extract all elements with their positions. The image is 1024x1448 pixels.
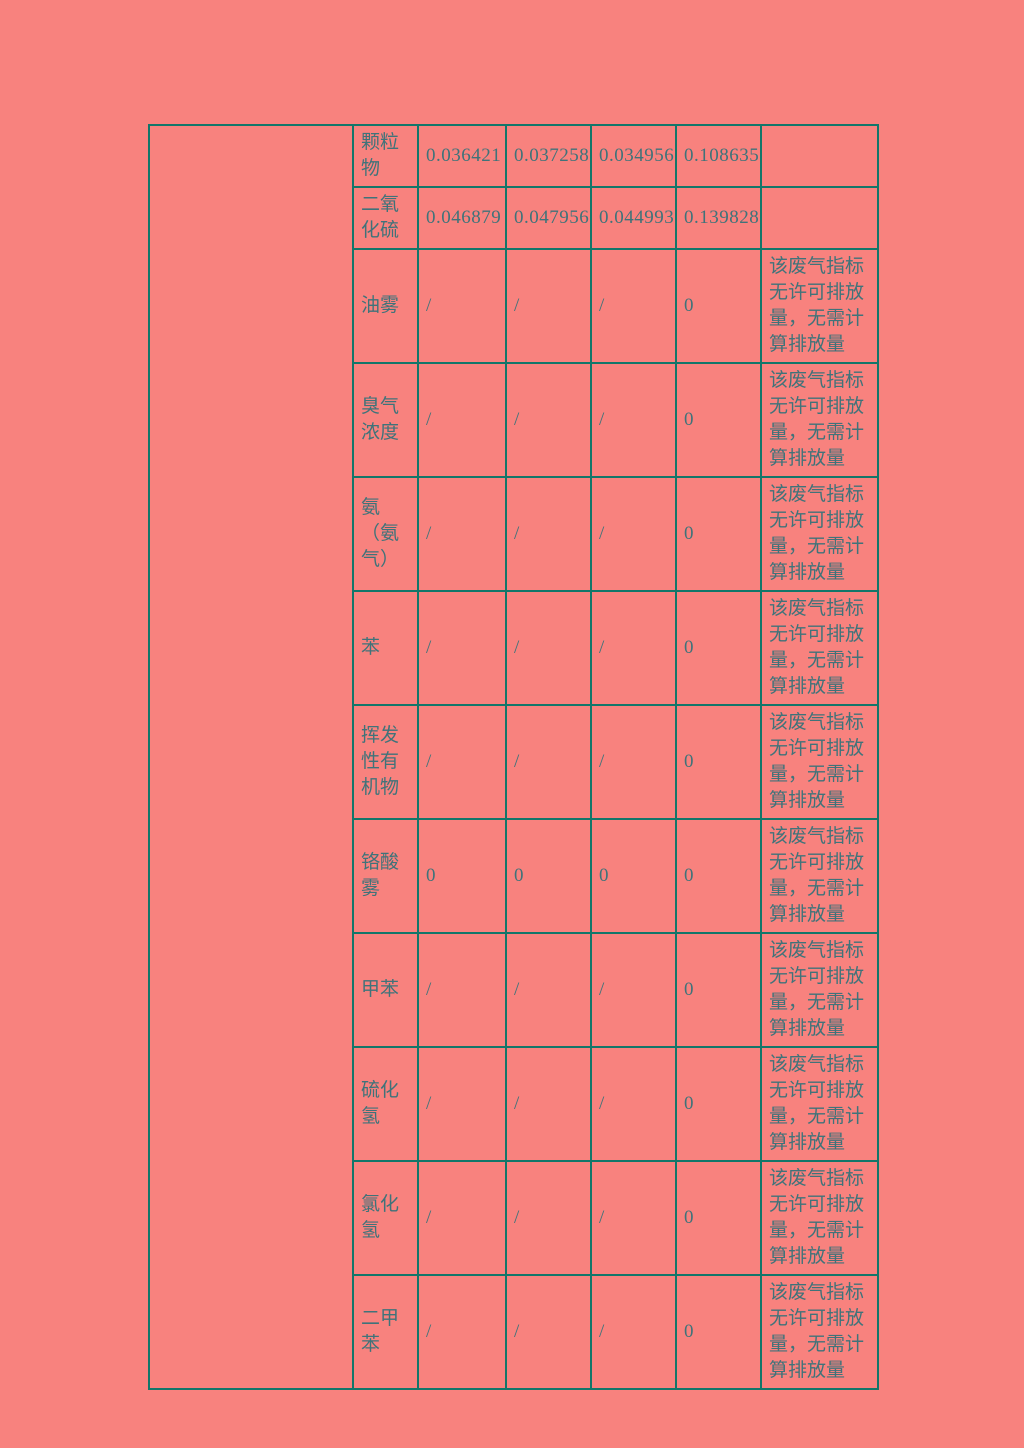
value-cell: 0.037258 xyxy=(506,125,591,187)
value-cell: / xyxy=(418,933,506,1047)
merged-left-cell xyxy=(149,125,353,1389)
value-cell: 0.108635 xyxy=(676,125,761,187)
pollutant-name-cell: 硫化氢 xyxy=(353,1047,418,1161)
pollutant-name-cell: 挥发性有机物 xyxy=(353,705,418,819)
value-cell: / xyxy=(591,249,676,363)
value-cell: / xyxy=(591,1161,676,1275)
value-cell: 0 xyxy=(676,477,761,591)
value-cell: / xyxy=(591,1047,676,1161)
pollutant-name-cell: 二氧化硫 xyxy=(353,187,418,249)
pollutant-name-cell: 油雾 xyxy=(353,249,418,363)
value-cell: / xyxy=(506,705,591,819)
value-cell: 0.046879 xyxy=(418,187,506,249)
remark-cell: 该废气指标无许可排放量，无需计算排放量 xyxy=(761,591,878,705)
value-cell: 0 xyxy=(676,819,761,933)
pollutant-name-cell: 氯化氢 xyxy=(353,1161,418,1275)
value-cell: / xyxy=(506,249,591,363)
remark-cell xyxy=(761,187,878,249)
value-cell: / xyxy=(591,477,676,591)
value-cell: / xyxy=(591,591,676,705)
value-cell: / xyxy=(506,1275,591,1389)
value-cell: / xyxy=(591,363,676,477)
value-cell: 0 xyxy=(676,705,761,819)
value-cell: / xyxy=(418,591,506,705)
value-cell: / xyxy=(506,477,591,591)
value-cell: 0 xyxy=(676,1275,761,1389)
value-cell: 0.036421 xyxy=(418,125,506,187)
value-cell: / xyxy=(506,591,591,705)
value-cell: 0.139828 xyxy=(676,187,761,249)
pollutant-name-cell: 甲苯 xyxy=(353,933,418,1047)
value-cell: 0 xyxy=(418,819,506,933)
value-cell: / xyxy=(591,933,676,1047)
value-cell: 0 xyxy=(676,933,761,1047)
value-cell: / xyxy=(418,705,506,819)
value-cell: / xyxy=(506,1047,591,1161)
remark-cell: 该废气指标无许可排放量，无需计算排放量 xyxy=(761,1047,878,1161)
emissions-table: 颗粒物 0.036421 0.037258 0.034956 0.108635 … xyxy=(148,124,879,1390)
value-cell: 0.034956 xyxy=(591,125,676,187)
remark-cell: 该废气指标无许可排放量，无需计算排放量 xyxy=(761,477,878,591)
pollutant-name-cell: 臭气浓度 xyxy=(353,363,418,477)
value-cell: 0.044993 xyxy=(591,187,676,249)
value-cell: 0.047956 xyxy=(506,187,591,249)
remark-cell: 该废气指标无许可排放量，无需计算排放量 xyxy=(761,1161,878,1275)
pollutant-name-cell: 苯 xyxy=(353,591,418,705)
value-cell: 0 xyxy=(676,363,761,477)
value-cell: / xyxy=(418,1161,506,1275)
pollutant-name-cell: 二甲苯 xyxy=(353,1275,418,1389)
remark-cell: 该废气指标无许可排放量，无需计算排放量 xyxy=(761,933,878,1047)
remark-cell: 该废气指标无许可排放量，无需计算排放量 xyxy=(761,363,878,477)
pollutant-name-cell: 颗粒物 xyxy=(353,125,418,187)
value-cell: / xyxy=(418,477,506,591)
table-row: 颗粒物 0.036421 0.037258 0.034956 0.108635 xyxy=(149,125,878,187)
value-cell: / xyxy=(506,363,591,477)
value-cell: / xyxy=(418,363,506,477)
remark-cell: 该废气指标无许可排放量，无需计算排放量 xyxy=(761,249,878,363)
value-cell: 0 xyxy=(676,1161,761,1275)
value-cell: 0 xyxy=(506,819,591,933)
value-cell: / xyxy=(418,1047,506,1161)
value-cell: / xyxy=(506,1161,591,1275)
pollutant-name-cell: 铬酸雾 xyxy=(353,819,418,933)
value-cell: / xyxy=(418,1275,506,1389)
pollutant-name-cell: 氨（氨气） xyxy=(353,477,418,591)
value-cell: / xyxy=(591,1275,676,1389)
remark-cell: 该废气指标无许可排放量，无需计算排放量 xyxy=(761,1275,878,1389)
remark-cell: 该废气指标无许可排放量，无需计算排放量 xyxy=(761,705,878,819)
remark-cell: 该废气指标无许可排放量，无需计算排放量 xyxy=(761,819,878,933)
value-cell: 0 xyxy=(591,819,676,933)
document-page: 颗粒物 0.036421 0.037258 0.034956 0.108635 … xyxy=(0,0,1024,1448)
value-cell: 0 xyxy=(676,1047,761,1161)
value-cell: / xyxy=(591,705,676,819)
value-cell: 0 xyxy=(676,249,761,363)
remark-cell xyxy=(761,125,878,187)
value-cell: 0 xyxy=(676,591,761,705)
value-cell: / xyxy=(506,933,591,1047)
value-cell: / xyxy=(418,249,506,363)
